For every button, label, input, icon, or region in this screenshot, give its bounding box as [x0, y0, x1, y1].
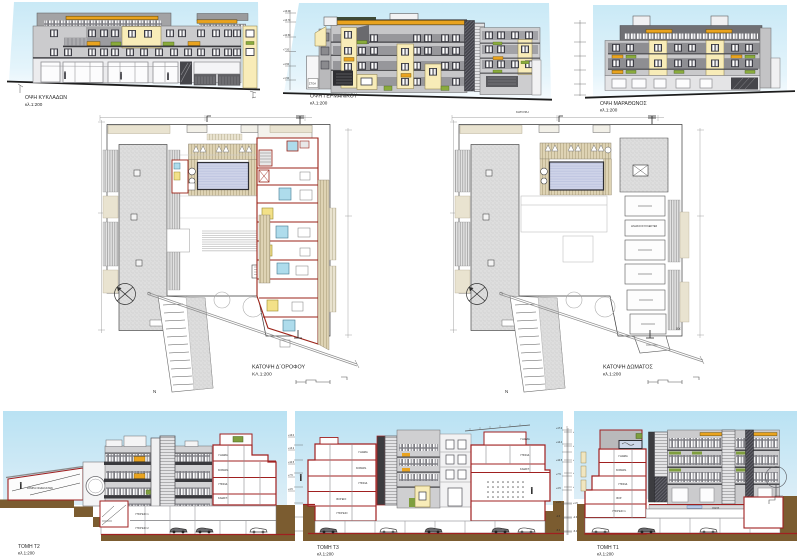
svg-text:ΥΠΟΓΕΙΟ 2: ΥΠΟΓΕΙΟ 2 — [135, 526, 149, 530]
svg-text:ΥΠΟΓΕΙΟ: ΥΠΟΓΕΙΟ — [336, 511, 348, 515]
svg-text:ΚΟΙΝΩΝ.: ΚΟΙΝΩΝ. — [616, 468, 627, 472]
svg-text:ΧΧ: ΧΧ — [676, 327, 681, 331]
svg-text:+1.50: +1.50 — [283, 77, 290, 80]
svg-text:ΥΠΟΓΕΙΟ 1: ΥΠΟΓΕΙΟ 1 — [135, 512, 149, 516]
svg-text:ΥΠΟΓΕΙΟ 1: ΥΠΟΓΕΙΟ 1 — [612, 509, 626, 513]
svg-text:OΨΗ ΜΑΡΑΘΩΝΟΣ: OΨΗ ΜΑΡΑΘΩΝΟΣ — [600, 101, 647, 107]
svg-text:+4.5: +4.5 — [556, 487, 561, 490]
svg-text:-5.4: -5.4 — [556, 529, 561, 532]
svg-text:ΤΟΜΗ Τ3: ΤΟΜΗ Τ3 — [317, 545, 339, 551]
svg-text:+10.5: +10.5 — [556, 459, 563, 462]
svg-text:κλ.1:200: κλ.1:200 — [603, 372, 621, 378]
svg-text:+14.4: +14.4 — [556, 441, 563, 444]
svg-text:N: N — [153, 389, 156, 394]
svg-text:+16.0: +16.0 — [288, 434, 295, 437]
svg-text:OΨΗ ΚΥΚΛΑΔΩΝ: OΨΗ ΚΥΚΛΑΔΩΝ — [25, 95, 67, 101]
svg-text:+10.50: +10.50 — [283, 34, 291, 37]
svg-text:Υ.ΔΩΜΑ: Υ.ΔΩΜΑ — [358, 450, 368, 454]
svg-text:Υ.ΔΩΜΑ: Υ.ΔΩΜΑ — [218, 453, 228, 457]
svg-text:ΚΑΤΟΨΗ: ΚΑΤΟΨΗ — [516, 110, 529, 114]
svg-text:ΚΑΘΙΣΤ.: ΚΑΘΙΣΤ. — [520, 467, 530, 471]
svg-text:κλ.1:200: κλ.1:200 — [600, 108, 618, 113]
svg-text:ΚΑΘΙΣΤ.: ΚΑΘΙΣΤ. — [218, 496, 228, 500]
svg-text:ΥΠΝΟΔ.: ΥΠΝΟΔ. — [358, 481, 368, 485]
svg-text:+1.5: +1.5 — [556, 501, 561, 504]
svg-text:ΥΠΝΟΔ.: ΥΠΝΟΔ. — [218, 482, 228, 486]
svg-text:+13.2: +13.2 — [288, 447, 295, 450]
svg-text:ΙΣΟΓΕΙΟ: ΙΣΟΓΕΙΟ — [336, 497, 346, 501]
svg-text:ΚΛ.1:200: ΚΛ.1:200 — [252, 372, 272, 378]
svg-text:ΙΣΟΓ.: ΙΣΟΓ. — [616, 496, 622, 500]
svg-text:ΚΑΤΟΨΗ Δ´ΟΡΟΦΟΥ: ΚΑΤΟΨΗ Δ´ΟΡΟΦΟΥ — [252, 365, 305, 371]
svg-text:ΚΑΤΟΨΗ ΔΩΜΑΤΟΣ: ΚΑΤΟΨΗ ΔΩΜΑΤΟΣ — [603, 365, 653, 371]
svg-text:ΚΟΙΝΩΝ.: ΚΟΙΝΩΝ. — [218, 468, 229, 472]
svg-text:+16.00: +16.00 — [283, 10, 291, 13]
svg-text:ΤΟΜΗ Τ1: ΤΟΜΗ Τ1 — [597, 545, 619, 551]
svg-text:+13.70: +13.70 — [283, 19, 291, 22]
svg-text:+10.5: +10.5 — [288, 461, 295, 464]
svg-text:ΗΛΙΑΚΟΙ ΣΥΛΛΕΚΤΕΣ: ΗΛΙΑΚΟΙ ΣΥΛΛΕΚΤΕΣ — [631, 224, 658, 228]
svg-text:κλ.1:200: κλ.1:200 — [317, 552, 334, 557]
svg-text:+7.5: +7.5 — [556, 473, 561, 476]
svg-text:κλ.1:200: κλ.1:200 — [310, 101, 328, 106]
svg-text:+4.50: +4.50 — [283, 63, 290, 66]
svg-text:+7.5: +7.5 — [288, 474, 293, 477]
svg-text:ΥΠΝΟΔ.: ΥΠΝΟΔ. — [618, 482, 628, 486]
svg-text:ΡΑΜΠΑ ΝΟΔΗΛΑΤΩΝ: ΡΑΜΠΑ ΝΟΔΗΛΑΤΩΝ — [27, 486, 53, 490]
svg-text:κλ.1:200: κλ.1:200 — [25, 102, 43, 107]
svg-text:Υ.ΔΩΜΑ: Υ.ΔΩΜΑ — [520, 437, 530, 441]
svg-text:+4.5: +4.5 — [288, 488, 293, 491]
svg-text:+7.50: +7.50 — [283, 49, 290, 52]
svg-text:+17.0: +17.0 — [556, 427, 563, 430]
svg-text:ΣΤOΑ: ΣΤOΑ — [309, 82, 316, 86]
svg-text:κλ.1:200: κλ.1:200 — [597, 552, 614, 557]
svg-text:N: N — [505, 389, 508, 394]
svg-text:ΥΠΝΟΔ.: ΥΠΝΟΔ. — [520, 453, 530, 457]
svg-text:-2.6: -2.6 — [556, 515, 561, 518]
svg-text:OΨΗ ΓΕΡΜΑΝΙΚOΥ: OΨΗ ΓΕΡΜΑΝΙΚOΥ — [310, 94, 358, 100]
svg-text:ΤΟΜΗ Τ2: ΤΟΜΗ Τ2 — [18, 544, 40, 550]
svg-text:Υ.ΔΩΜΑ: Υ.ΔΩΜΑ — [618, 454, 628, 458]
svg-text:ΚΟΙΝΩΝ.: ΚΟΙΝΩΝ. — [356, 466, 367, 470]
svg-text:κλ.1:200: κλ.1:200 — [18, 551, 35, 556]
